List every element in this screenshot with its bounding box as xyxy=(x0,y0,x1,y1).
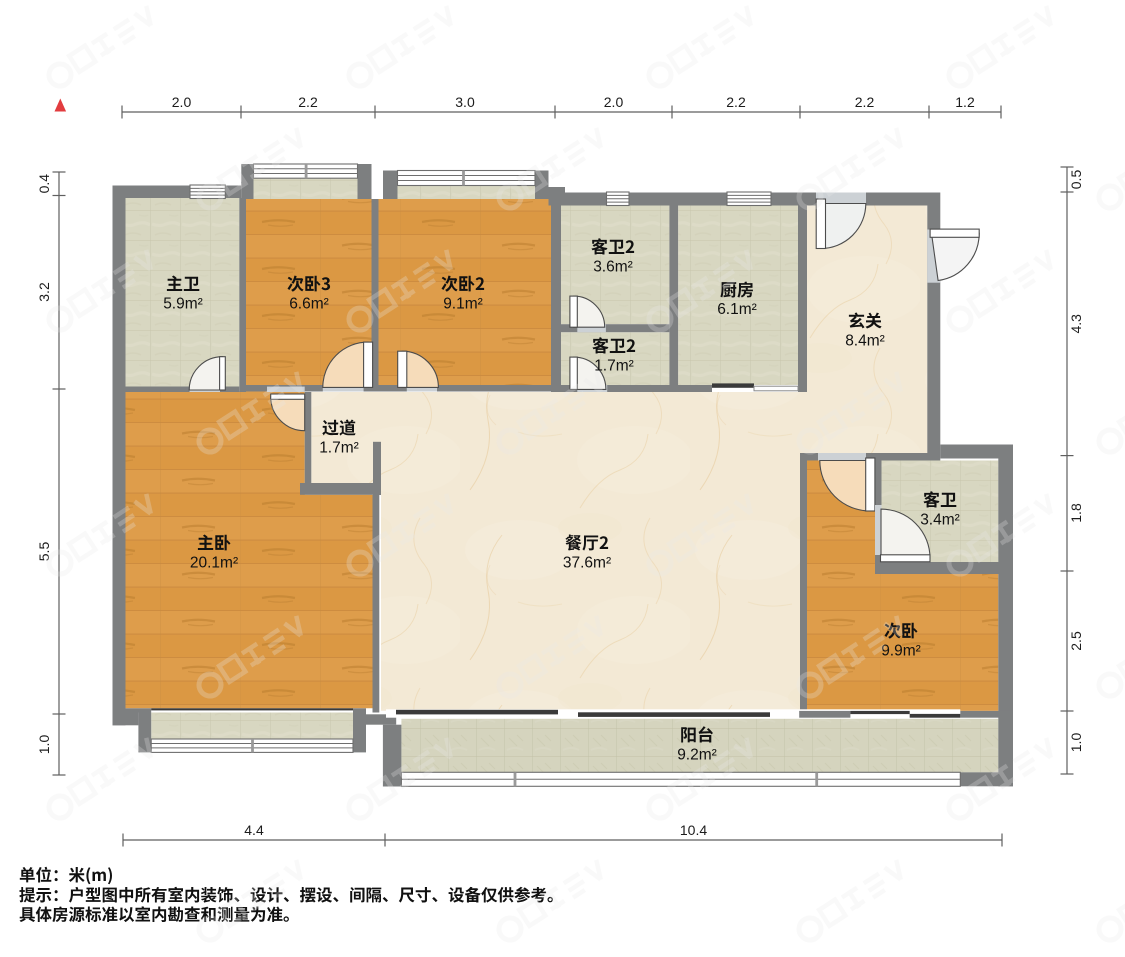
svg-text:10.4: 10.4 xyxy=(680,822,707,838)
svg-text:3.2: 3.2 xyxy=(36,282,52,302)
svg-text:2.2: 2.2 xyxy=(726,94,746,110)
svg-text:1.7m²: 1.7m² xyxy=(319,440,359,457)
svg-text:2.0: 2.0 xyxy=(172,94,192,110)
svg-text:1.2: 1.2 xyxy=(955,94,975,110)
svg-text:0.5: 0.5 xyxy=(1068,170,1084,190)
svg-text:2.5: 2.5 xyxy=(1068,631,1084,651)
svg-text:37.6m²: 37.6m² xyxy=(563,555,611,572)
svg-text:1.0: 1.0 xyxy=(36,735,52,755)
svg-text:4.4: 4.4 xyxy=(244,822,264,838)
svg-text:3.0: 3.0 xyxy=(455,94,475,110)
svg-text:3.6m²: 3.6m² xyxy=(593,259,633,276)
svg-text:2.0: 2.0 xyxy=(604,94,624,110)
svg-text:0.4: 0.4 xyxy=(36,174,52,194)
svg-text:9.1m²: 9.1m² xyxy=(443,296,483,313)
svg-text:9.2m²: 9.2m² xyxy=(677,747,717,764)
svg-text:1.8: 1.8 xyxy=(1068,503,1084,523)
svg-text:8.4m²: 8.4m² xyxy=(845,333,885,350)
svg-text:4.3: 4.3 xyxy=(1068,314,1084,334)
svg-text:9.9m²: 9.9m² xyxy=(881,643,921,660)
svg-text:6.6m²: 6.6m² xyxy=(289,296,329,313)
svg-text:3.4m²: 3.4m² xyxy=(920,512,960,529)
svg-text:6.1m²: 6.1m² xyxy=(717,301,757,318)
svg-text:2.2: 2.2 xyxy=(855,94,875,110)
svg-text:2.2: 2.2 xyxy=(298,94,318,110)
svg-text:5.9m²: 5.9m² xyxy=(163,296,203,313)
svg-text:20.1m²: 20.1m² xyxy=(190,555,238,572)
svg-text:1.7m²: 1.7m² xyxy=(594,358,634,375)
svg-text:1.0: 1.0 xyxy=(1068,733,1084,753)
